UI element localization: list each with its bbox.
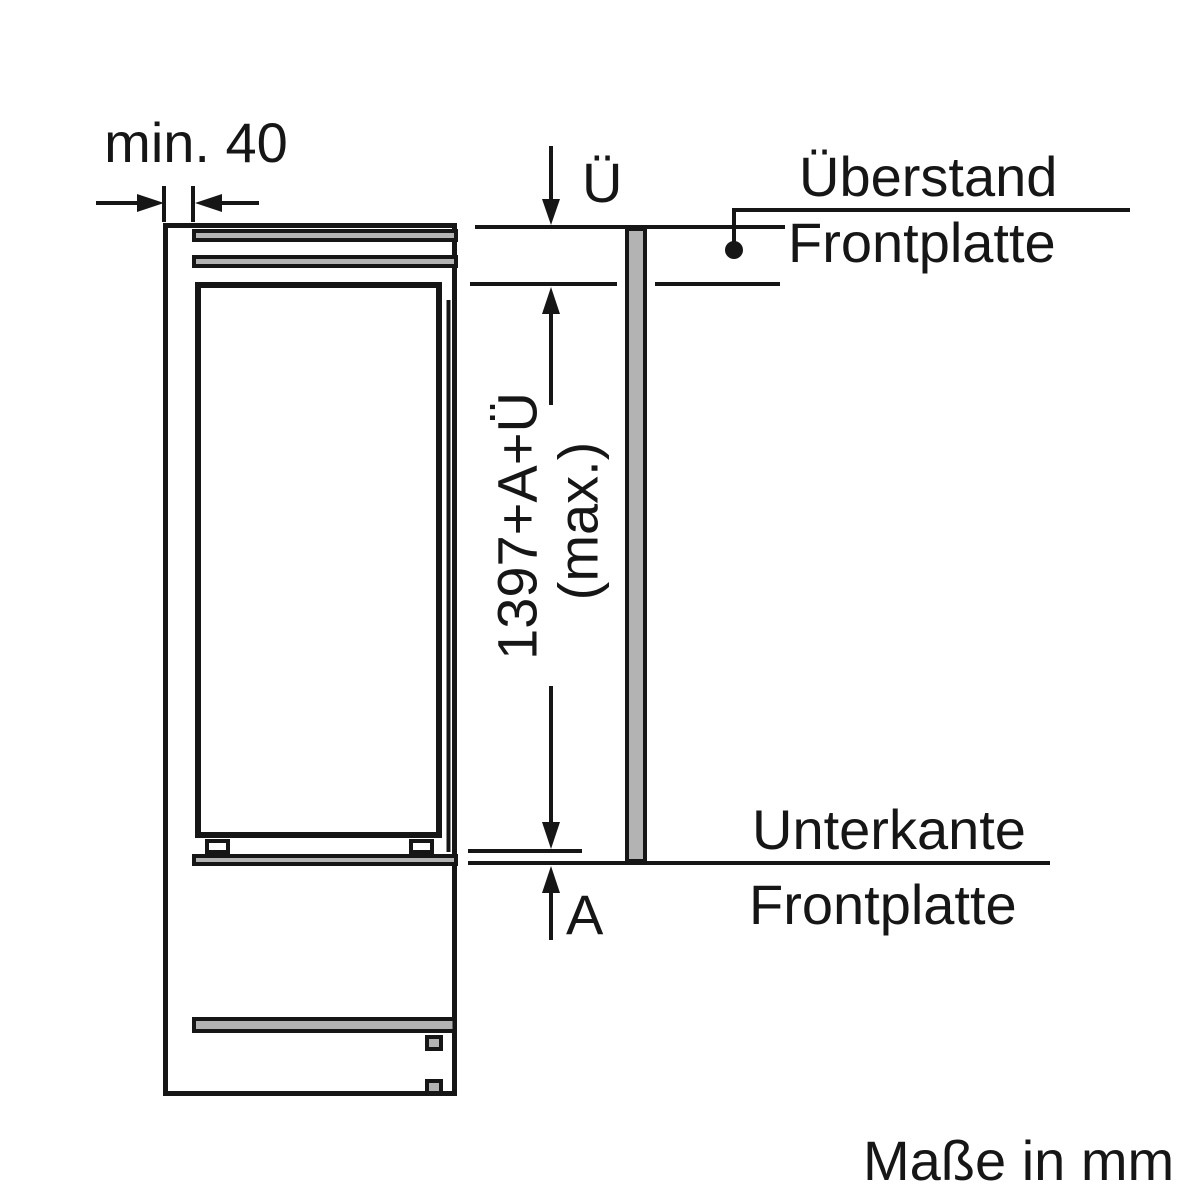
recess-arrowhead-up [542,866,560,893]
overhang-arrowhead-down [542,199,560,225]
height-dim-label-line2: (max.) [547,442,610,601]
height-dim-arrowhead-down [542,822,560,849]
overhang-name-line2: Frontplatte [788,211,1056,274]
plinth-block-lower [427,1081,441,1093]
units-note-label: Maße in mm [863,1129,1174,1192]
appliance-door-outline [198,285,439,835]
bottom-edge-label-line2: Frontplatte [749,873,1017,936]
min-gap-label: min. 40 [104,111,288,174]
min-gap-arrowhead-right [195,194,222,212]
overhang-leader-dot [725,241,743,259]
appliance-foot-right [411,841,432,852]
min-gap-arrowhead-left [137,194,164,212]
bottom-vent-panel [194,856,456,864]
front-panel-bar [627,229,645,861]
plinth-panel [194,1019,455,1031]
appliance-foot-left [207,841,228,852]
top-vent-panel-upper [194,231,456,240]
installation-diagram: min. 40 Ü Überstand Frontplatte 1397+A+Ü… [0,0,1200,1200]
recess-symbol-label: A [566,883,604,946]
height-dim-arrowhead-up [542,287,560,314]
overhang-name-line1: Überstand [799,145,1057,208]
bottom-edge-label-line1: Unterkante [752,798,1026,861]
top-vent-panel-lower [194,257,456,266]
plinth-block-upper [427,1037,441,1049]
height-dim-label-line1: 1397+A+Ü [486,392,549,660]
overhang-symbol-label: Ü [582,151,622,214]
diagram-page: min. 40 Ü Überstand Frontplatte 1397+A+Ü… [0,0,1200,1200]
